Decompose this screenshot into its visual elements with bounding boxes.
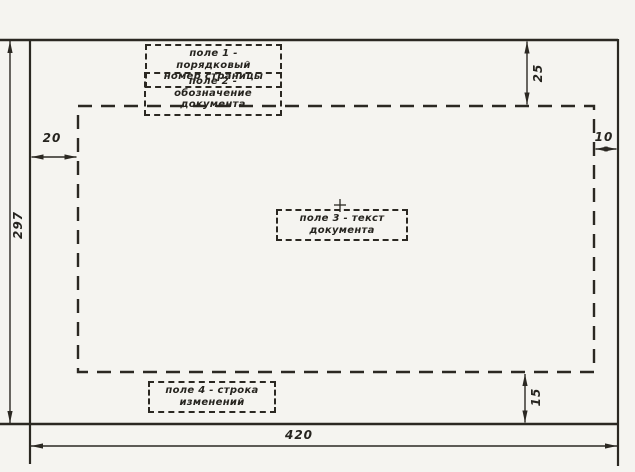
dim-value-top-margin: 25 <box>531 55 545 91</box>
dim-value-page-height: 297 <box>11 207 25 243</box>
dim-value-left-margin: 20 <box>34 131 70 145</box>
dim-value-page-width: 420 <box>281 428 317 442</box>
page-layout-diagram: поле 1 - порядковый номер страницы поле … <box>0 0 635 472</box>
field2-label-box: поле 2 - обозначение документа <box>144 72 282 116</box>
field4-label-box: поле 4 - строка изменений <box>148 381 276 413</box>
dim-value-bottom-margin: 15 <box>529 379 543 415</box>
dim-value-right-margin: 10 <box>586 130 622 144</box>
field3-label-box: поле 3 - текст документа <box>276 209 408 241</box>
